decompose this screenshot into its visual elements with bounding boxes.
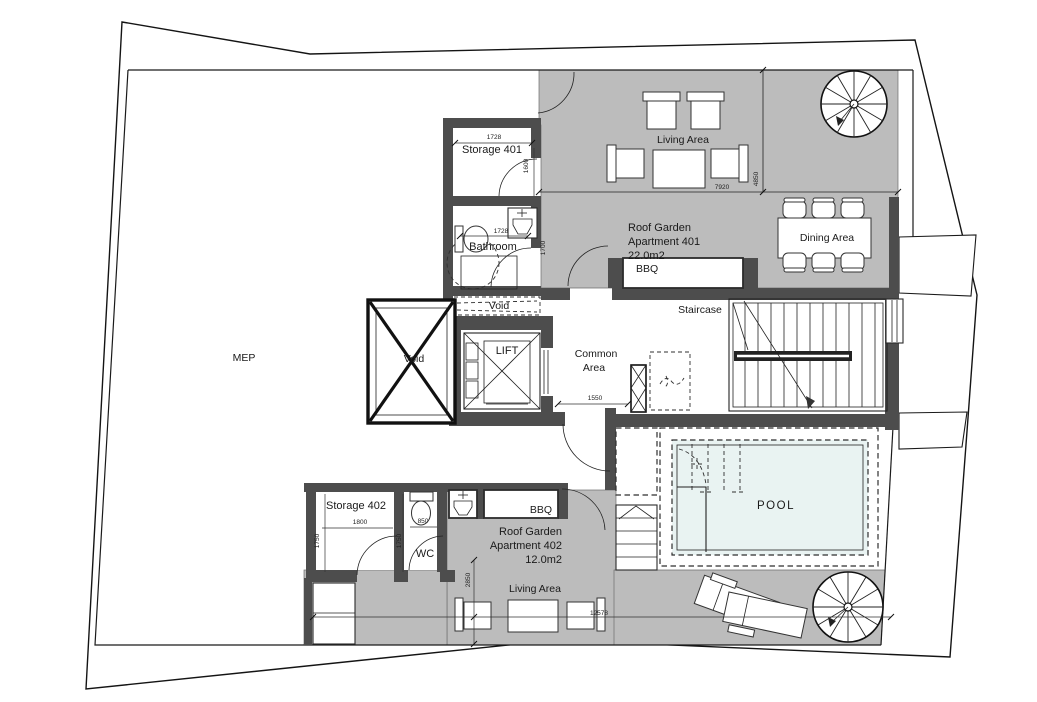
label-common-2: Area bbox=[583, 362, 605, 374]
dim-storage402-w: 1800 bbox=[353, 519, 368, 526]
label-void-slab: Void bbox=[489, 300, 510, 312]
dim-wc-d: 1750 bbox=[396, 533, 403, 548]
label-living-402: Living Area bbox=[509, 583, 561, 595]
dim-storage401-d: 1600 bbox=[523, 158, 530, 173]
label-apt401-3: 22.0m2 bbox=[628, 250, 665, 262]
floor-plan-drawing: MEP Storage 401 Bathroom Void Void LIFT … bbox=[0, 0, 1037, 702]
label-bbq-402: BBQ bbox=[530, 504, 552, 516]
side-terrace-upper bbox=[899, 235, 976, 296]
dim-storage402-d: 1750 bbox=[314, 533, 321, 548]
label-common-1: Common bbox=[575, 348, 618, 360]
side-terrace-lower bbox=[899, 412, 967, 449]
staircase-detail bbox=[729, 299, 903, 411]
label-dining: Dining Area bbox=[800, 232, 854, 244]
label-wc: WC bbox=[416, 548, 434, 560]
dim-terrace402-w: 12578 bbox=[590, 610, 608, 617]
label-bathroom: Bathroom bbox=[469, 241, 517, 253]
label-mep: MEP bbox=[233, 352, 256, 364]
label-pool: POOL bbox=[757, 500, 795, 512]
sink-bathroom bbox=[508, 208, 537, 238]
label-void-shaft: Void bbox=[404, 353, 425, 365]
coffee-table bbox=[653, 150, 705, 188]
sink-402 bbox=[449, 490, 477, 518]
label-apt402-3: 12.0m2 bbox=[525, 554, 562, 566]
spiral-stair-top bbox=[821, 71, 887, 137]
floor-plan: MEP Storage 401 Bathroom Void Void LIFT … bbox=[0, 0, 1037, 702]
pool-deck-stair bbox=[616, 505, 657, 570]
label-staircase: Staircase bbox=[678, 304, 722, 316]
label-lift: LIFT bbox=[496, 345, 519, 357]
label-apt401-2: Apartment 401 bbox=[628, 236, 700, 248]
label-apt402-2: Apartment 402 bbox=[490, 540, 562, 552]
label-living-401: Living Area bbox=[657, 134, 709, 146]
label-apt402-1: Roof Garden bbox=[499, 526, 562, 538]
spiral-stair-bottom bbox=[813, 572, 883, 642]
dim-common-w: 1550 bbox=[588, 395, 603, 402]
column bbox=[631, 365, 646, 412]
pool-area bbox=[616, 428, 878, 570]
dim-wc-w: 850 bbox=[418, 518, 429, 525]
label-bbq-401: BBQ bbox=[636, 263, 658, 275]
dim-bathroom-w: 1728 bbox=[494, 228, 509, 235]
bench-planter bbox=[313, 583, 355, 644]
dim-bathroom-d: 1700 bbox=[540, 240, 547, 255]
dim-terrace402-d: 2850 bbox=[465, 572, 472, 587]
dim-storage401-w: 1728 bbox=[487, 134, 502, 141]
label-storage-402: Storage 402 bbox=[326, 500, 386, 512]
door-common-upper bbox=[563, 424, 610, 471]
dim-terrace401-d: 4850 bbox=[753, 171, 760, 186]
label-apt401-1: Roof Garden bbox=[628, 222, 691, 234]
dim-terrace401-w: 7920 bbox=[715, 184, 730, 191]
pool-water bbox=[672, 440, 868, 555]
living-402-furniture bbox=[455, 598, 605, 632]
label-storage-401: Storage 401 bbox=[462, 144, 522, 156]
planter bbox=[650, 352, 690, 410]
